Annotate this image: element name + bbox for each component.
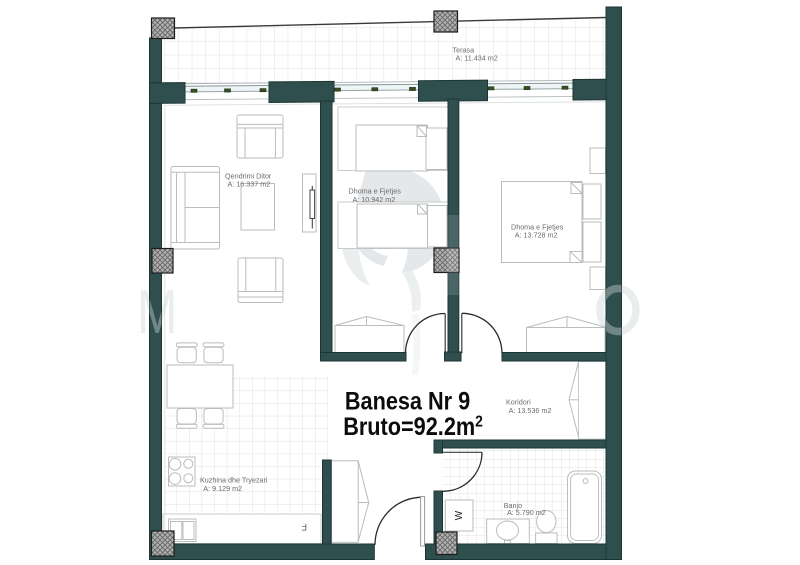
svg-text:A: 13.536 m2: A: 13.536 m2 — [509, 406, 552, 415]
svg-text:A: 11.434 m2: A: 11.434 m2 — [456, 53, 498, 62]
svg-text:Banesa Nr 9: Banesa Nr 9 — [345, 387, 470, 415]
svg-text:F: F — [301, 522, 307, 532]
svg-text:A: 10.942 m2: A: 10.942 m2 — [353, 195, 396, 204]
svg-text:Koridori: Koridori — [506, 397, 531, 406]
svg-text:A: 16.337 m2: A: 16.337 m2 — [228, 180, 271, 189]
svg-text:Bruto=92.2m2: Bruto=92.2m2 — [343, 412, 483, 440]
svg-text:A: 5.790 m2: A: 5.790 m2 — [507, 508, 546, 517]
svg-text:A: 9.129 m2: A: 9.129 m2 — [203, 484, 242, 493]
svg-text:A: 13.728 m2: A: 13.728 m2 — [515, 231, 558, 240]
svg-text:W: W — [454, 510, 465, 520]
